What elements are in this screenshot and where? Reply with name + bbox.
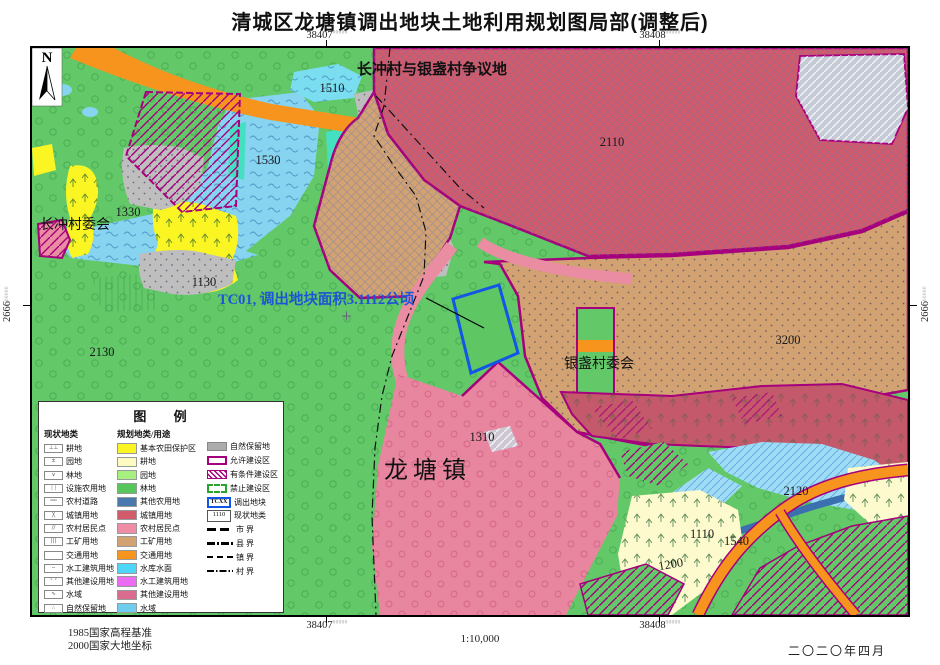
planned-swatch <box>117 590 137 601</box>
label-changchong-committee: 长冲村委会 <box>40 217 110 233</box>
north-arrow: N <box>32 48 62 106</box>
legend-item: ±园地 <box>44 455 114 468</box>
legend-item: 市 界 <box>207 523 278 537</box>
label-tc01-note: TC01, 调出地块面积3.1112公顷 <box>218 290 415 308</box>
legend-item: 耕地 <box>117 455 204 468</box>
planned-swatch <box>117 550 137 561</box>
planned-swatch <box>117 603 137 614</box>
current-swatch-icon: ∿ <box>44 590 63 599</box>
legend-title: 图 例 <box>54 406 278 425</box>
planned-swatch <box>117 497 137 508</box>
city-boundary-swatch <box>207 528 233 532</box>
current-swatch-icon: ∴ <box>44 604 63 613</box>
legend-item: 其他农用地 <box>117 495 204 508</box>
planned-swatch <box>117 483 137 494</box>
legend-item: ┆┆设施农用地 <box>44 482 114 495</box>
label-longtang-town: 龙塘镇 <box>384 457 471 484</box>
grid-label-bottom-right: 3840800000 <box>634 620 686 631</box>
current-swatch-icon: ∨ <box>44 471 63 480</box>
label-1510: 1510 <box>320 81 345 95</box>
current-swatch-icon <box>44 551 63 560</box>
legend-item: TCXX调出地块 <box>207 495 278 509</box>
current-swatch-icon: ┆┆ <box>44 484 63 493</box>
current-swatch-icon: ||| <box>44 537 63 546</box>
current-swatch-icon: ⊥⊥ <box>44 444 63 453</box>
town-boundary-swatch <box>207 556 233 558</box>
legend-item: ⊥⊥耕地 <box>44 442 114 455</box>
legend-item: ˣ ˣ其他建设用地 <box>44 575 114 588</box>
label-2120: 2120 <box>784 484 809 498</box>
legend-item: 允许建设区 <box>207 454 278 468</box>
legend-item: 水库水面 <box>117 562 204 575</box>
legend-item: 城镇用地 <box>117 508 204 521</box>
legend-item: 自然保留地 <box>207 440 278 454</box>
legend-item: 其他建设用地 <box>117 588 204 601</box>
conditional-zone-swatch <box>207 470 227 479</box>
label-dispute-area: 长冲村与银盏村争议地 <box>357 60 507 78</box>
current-swatch-icon: ∕∕ <box>44 524 63 533</box>
legend-header-current: 现状地类 <box>44 428 114 440</box>
grid-label-bottom-left: 3840700000 <box>301 620 353 631</box>
planned-swatch <box>117 563 137 574</box>
legend-item: ╳城镇用地 <box>44 508 114 521</box>
label-yinzhan-committee: 银盏村委会 <box>564 356 634 372</box>
legend-item: 水工建筑用地 <box>117 575 204 588</box>
legend-item: 工矿用地 <box>117 535 204 548</box>
planning-map-page: { "title": "清城区龙塘镇调出地块土地利用规划图局部(调整后)", "… <box>0 0 940 665</box>
planned-swatch <box>117 470 137 481</box>
legend-item: 有条件建设区 <box>207 468 278 482</box>
label-1540: 1540 <box>724 534 749 548</box>
current-swatch-icon: ╌ <box>44 564 63 573</box>
north-label: N <box>42 50 53 66</box>
label-3200: 3200 <box>776 333 801 347</box>
legend-item: ∿水域 <box>44 588 114 601</box>
grid-label-top-left: 3840700000 <box>301 30 353 41</box>
legend-item: 基本农田保护区 <box>117 442 204 455</box>
legend-header-planned: 规划地类/用途 <box>117 428 204 440</box>
legend-item: 水域 <box>117 602 204 615</box>
page-title: 清城区龙塘镇调出地块土地利用规划图局部(调整后) <box>0 6 940 35</box>
county-boundary-swatch <box>207 542 233 545</box>
legend-item: 农村居民点 <box>117 522 204 535</box>
planned-swatch <box>117 523 137 534</box>
datum-line-1: 1985国家高程基准 <box>68 627 152 640</box>
grid-tick-left <box>23 305 30 306</box>
legend-item: 县 界 <box>207 537 278 551</box>
allowed-zone-swatch <box>207 456 227 465</box>
grid-label-right: 266600000 <box>920 272 931 336</box>
label-1330: 1330 <box>116 205 141 219</box>
label-2130: 2130 <box>90 345 115 359</box>
forbidden-zone-swatch <box>207 484 227 493</box>
planned-swatch <box>117 576 137 587</box>
legend-column-planned: 规划地类/用途 基本农田保护区 耕地 园地 林地 其他农用地 城镇用地 农村居民… <box>117 427 204 615</box>
legend-column-current: 现状地类 ⊥⊥耕地 ±园地 ∨林地 ┆┆设施农用地 ╍╍农村道路 ╳城镇用地 ∕… <box>44 427 114 615</box>
legend-item: ∴自然保留地 <box>44 602 114 615</box>
planned-swatch <box>117 457 137 468</box>
legend-item: |||工矿用地 <box>44 535 114 548</box>
legend-item: ╍╍农村道路 <box>44 495 114 508</box>
current-swatch-icon: ˣ ˣ <box>44 577 63 586</box>
legend-column-zoning: . 自然保留地 允许建设区 有条件建设区 禁止建设区 TCXX调出地块 1110… <box>207 427 278 615</box>
legend-item: 林地 <box>117 482 204 495</box>
legend-item: ∕∕农村居民点 <box>44 522 114 535</box>
village-boundary-swatch <box>207 570 233 572</box>
grid-label-top-right: 3840800000 <box>634 30 686 41</box>
label-1130: 1130 <box>192 275 217 289</box>
legend-box: 图 例 现状地类 ⊥⊥耕地 ±园地 ∨林地 ┆┆设施农用地 ╍╍农村道路 ╳城镇… <box>38 401 284 613</box>
map-date: 二〇二〇年四月 <box>788 642 886 659</box>
grid-tick-right <box>910 305 917 306</box>
legend-item: 禁止建设区 <box>207 481 278 495</box>
planned-swatch <box>117 510 137 521</box>
status-code-swatch: 1110 <box>207 510 231 522</box>
datum-note: 1985国家高程基准 2000国家大地坐标 <box>68 627 152 653</box>
legend-item: 镇 界 <box>207 550 278 564</box>
reserve-swatch <box>207 442 227 451</box>
legend-item: ∨林地 <box>44 469 114 482</box>
legend-item: 园地 <box>117 469 204 482</box>
planned-swatch <box>117 536 137 547</box>
planned-swatch <box>117 443 137 454</box>
current-swatch-icon: ╍╍ <box>44 497 63 506</box>
label-2110: 2110 <box>600 135 625 149</box>
legend-item: 村 界 <box>207 564 278 578</box>
grid-label-left: 266600000 <box>2 272 13 336</box>
parcel-swatch: TCXX <box>207 497 231 508</box>
label-1110: 1110 <box>690 527 714 541</box>
label-1310: 1310 <box>470 430 495 444</box>
map-scale: 1:10,000 <box>440 633 520 645</box>
current-swatch-icon: ± <box>44 457 63 466</box>
legend-item: 1110现状地类 <box>207 509 278 523</box>
label-1530: 1530 <box>256 153 281 167</box>
current-swatch-icon: ╳ <box>44 511 63 520</box>
legend-item: 交通用地 <box>117 548 204 561</box>
region-green-corridor <box>577 308 614 394</box>
datum-line-2: 2000国家大地坐标 <box>68 640 152 653</box>
map-frame: N 长冲村与银盏村争议地 1510 1530 长冲村委会 1330 1130 2… <box>30 46 910 617</box>
legend-item: ╌水工建筑用地 <box>44 562 114 575</box>
legend-item: 交通用地 <box>44 548 114 561</box>
